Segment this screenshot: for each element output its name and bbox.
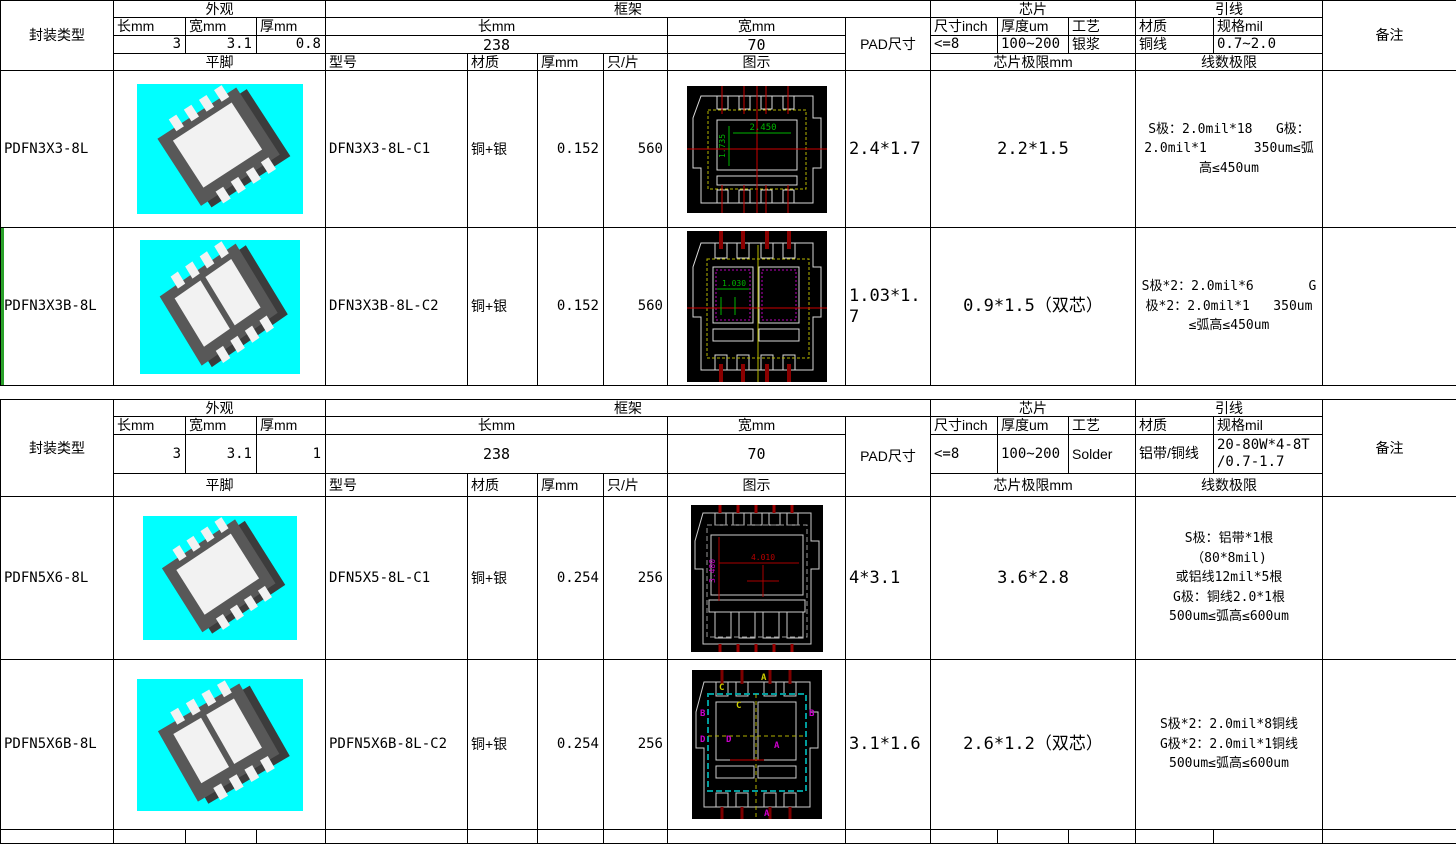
material-cell: 铜+银	[468, 660, 538, 830]
appearance-thickness-label: 厚mm	[257, 18, 326, 36]
spacer-cell	[998, 830, 1069, 844]
frame-header: 框架	[326, 400, 931, 417]
chip-process-value: Solder	[1069, 435, 1136, 474]
chip-limit-cell: 0.9*1.5（双芯）	[931, 228, 1136, 386]
wire-spec-label: 规格mil	[1214, 18, 1323, 36]
spacer-cell	[1323, 830, 1456, 844]
cad-label-c: C	[719, 683, 724, 693]
cad-label-d: D	[726, 735, 732, 745]
pad-size-cell: 1.03*1.7	[846, 228, 931, 386]
cad-footprint-diagram: 4.010 3.480	[691, 505, 823, 652]
chip-thickness-label: 厚度um	[998, 18, 1069, 36]
spacer-cell	[326, 830, 468, 844]
thickness-column-header: 厚mm	[538, 54, 604, 71]
chip-thickness-value: 100~200	[998, 435, 1069, 474]
remark-header: 备注	[1323, 400, 1456, 497]
chip-header: 芯片	[931, 1, 1136, 18]
material-column-header: 材质	[468, 474, 538, 497]
appearance-header: 外观	[114, 400, 326, 417]
appearance-header: 外观	[114, 1, 326, 18]
package-type-header: 封装类型	[1, 1, 114, 71]
chip-limit-header: 芯片极限mm	[931, 474, 1136, 497]
remark-cell	[1323, 71, 1456, 228]
cad-diagram-cell: C C A B B D D A A	[668, 660, 846, 830]
chip-3d-photo	[143, 516, 297, 640]
appearance-length-label: 长mm	[114, 417, 186, 435]
appearance-width-value: 3.1	[186, 36, 257, 54]
wire-limit-cell: S极*2：2.0mil*6 G 极*2：2.0mil*1 350um ≤弧高≤4…	[1136, 228, 1323, 386]
pad-size-header: PAD尺寸	[846, 417, 931, 497]
cad-footprint-diagram: 2.450 1.735	[687, 86, 827, 213]
appearance-width-value: 3.1	[186, 435, 257, 474]
thickness-column-header: 厚mm	[538, 474, 604, 497]
flat-foot-header: 平脚	[114, 474, 326, 497]
frame-length-label: 长mm	[326, 417, 668, 435]
cad-label-a: A	[764, 809, 770, 819]
material-cell: 铜+银	[468, 228, 538, 386]
material-cell: 铜+银	[468, 71, 538, 228]
flat-foot-header: 平脚	[114, 54, 326, 71]
thickness-cell: 0.152	[538, 71, 604, 228]
pcs-cell: 560	[604, 228, 668, 386]
thickness-cell: 0.152	[538, 228, 604, 386]
cad-label-d: D	[700, 735, 706, 745]
package-type-cell: PDFN3X3-8L	[1, 71, 114, 228]
cad-label-b: B	[700, 709, 706, 719]
spacer-cell	[1, 830, 114, 844]
appearance-thickness-value: 1	[257, 435, 326, 474]
wire-spec-value: 20-80W*4-8T /0.7-1.7	[1214, 435, 1323, 474]
chip-photo-cell	[114, 497, 326, 660]
appearance-width-label: 宽mm	[186, 18, 257, 36]
spacer-cell	[186, 830, 257, 844]
wire-material-value: 铜线	[1136, 36, 1214, 54]
cad-label-a: A	[761, 673, 767, 683]
model-cell: DFN3X3B-8L-C2	[326, 228, 468, 386]
material-cell: 铜+银	[468, 497, 538, 660]
wire-spec-value: 0.7~2.0	[1214, 36, 1323, 54]
cad-dim-horizontal: 4.010	[750, 553, 774, 562]
chip-limit-cell: 2.2*1.5	[931, 71, 1136, 228]
model-cell: DFN3X3-8L-C1	[326, 71, 468, 228]
pad-size-cell: 2.4*1.7	[846, 71, 931, 228]
spacer-cell	[538, 830, 604, 844]
cad-dim-horizontal: 2.450	[749, 123, 776, 133]
package-table-2: 封装类型 外观 框架 芯片 引线 备注 长mm 宽mm 厚mm 长mm 宽mm …	[0, 399, 1456, 844]
chip-size-value: <=8	[931, 36, 998, 54]
package-table-1: 封装类型 外观 框架 芯片 引线 备注 长mm 宽mm 厚mm 长mm 宽mm …	[0, 0, 1456, 386]
spacer-cell	[1214, 830, 1323, 844]
frame-length-value: 238	[326, 36, 668, 54]
chip-thickness-value: 100~200	[998, 36, 1069, 54]
frame-length-label: 长mm	[326, 18, 668, 36]
package-type-cell: PDFN3X3B-8L	[1, 228, 114, 386]
chip-limit-cell: 2.6*1.2（双芯）	[931, 660, 1136, 830]
pad-size-cell: 4*3.1	[846, 497, 931, 660]
model-cell: DFN5X5-8L-C1	[326, 497, 468, 660]
cad-diagram-cell: 2.450 1.735	[668, 71, 846, 228]
spacer-cell	[668, 830, 846, 844]
remark-cell	[1323, 497, 1456, 660]
wire-limit-cell: S极*2：2.0mil*8铜线 G极*2：2.0mil*1铜线 500um≤弧高…	[1136, 660, 1323, 830]
wire-limit-cell: S极：2.0mil*18 G极： 2.0mil*1 350um≤弧 高≤450u…	[1136, 71, 1323, 228]
cad-dim-vertical: 1.735	[718, 133, 727, 157]
pad-size-cell: 3.1*1.6	[846, 660, 931, 830]
chip-photo-cell	[114, 660, 326, 830]
chip-photo-cell	[114, 228, 326, 386]
chip-size-label: 尺寸inch	[931, 18, 998, 36]
cad-label-b: B	[809, 709, 815, 719]
chip-size-label: 尺寸inch	[931, 417, 998, 435]
pcs-column-header: 只/片	[604, 474, 668, 497]
wire-limit-header: 线数极限	[1136, 474, 1323, 497]
chip-size-value: <=8	[931, 435, 998, 474]
spacer-cell	[114, 830, 186, 844]
remark-cell	[1323, 660, 1456, 830]
cad-label-a: A	[774, 741, 780, 751]
cad-dim-horizontal: 1.030	[721, 279, 745, 288]
package-type-header: 封装类型	[1, 400, 114, 497]
section-divider	[0, 386, 1456, 399]
wire-header: 引线	[1136, 400, 1323, 417]
spacer-cell	[257, 830, 326, 844]
cad-footprint-diagram: C C A B B D D A A	[692, 670, 822, 819]
spacer-cell	[846, 830, 931, 844]
diagram-column-header: 图示	[668, 474, 846, 497]
cad-diagram-cell: 4.010 3.480	[668, 497, 846, 660]
cad-footprint-diagram: 1.030	[687, 231, 827, 382]
wire-material-value: 铝带/铜线	[1136, 435, 1214, 474]
remark-cell	[1323, 228, 1456, 386]
thickness-cell: 0.254	[538, 497, 604, 660]
model-column-header: 型号	[326, 54, 468, 71]
chip-process-value: 银浆	[1069, 36, 1136, 54]
material-column-header: 材质	[468, 54, 538, 71]
wire-material-label: 材质	[1136, 18, 1214, 36]
chip-3d-photo	[137, 84, 303, 214]
appearance-length-value: 3	[114, 435, 186, 474]
wire-limit-header: 线数极限	[1136, 54, 1323, 71]
wire-spec-label: 规格mil	[1214, 417, 1323, 435]
chip-limit-cell: 3.6*2.8	[931, 497, 1136, 660]
appearance-thickness-label: 厚mm	[257, 417, 326, 435]
pcs-cell: 256	[604, 497, 668, 660]
chip-process-label: 工艺	[1069, 18, 1136, 36]
spacer-cell	[931, 830, 998, 844]
chip-limit-header: 芯片极限mm	[931, 54, 1136, 71]
pcs-cell: 256	[604, 660, 668, 830]
frame-width-value: 70	[668, 36, 846, 54]
chip-photo-cell	[114, 71, 326, 228]
chip-header: 芯片	[931, 400, 1136, 417]
package-type-cell: PDFN5X6-8L	[1, 497, 114, 660]
chip-thickness-label: 厚度um	[998, 417, 1069, 435]
wire-material-text: 铜线	[1139, 36, 1167, 53]
frame-width-label: 宽mm	[668, 417, 846, 435]
wire-limit-cell: S极：铝带*1根 （80*8mil) 或铝线12mil*5根 G极：铜线2.0*…	[1136, 497, 1323, 660]
appearance-length-value: 3	[114, 36, 186, 54]
appearance-thickness-value: 0.8	[257, 36, 326, 54]
pcs-cell: 560	[604, 71, 668, 228]
spacer-cell	[468, 830, 538, 844]
thickness-cell: 0.254	[538, 660, 604, 830]
wire-header: 引线	[1136, 1, 1323, 18]
appearance-width-label: 宽mm	[186, 417, 257, 435]
pcs-column-header: 只/片	[604, 54, 668, 71]
spec-sheet: 封装类型 外观 框架 芯片 引线 备注 长mm 宽mm 厚mm 长mm 宽mm …	[0, 0, 1456, 844]
frame-length-value: 238	[326, 435, 668, 474]
diagram-column-header: 图示	[668, 54, 846, 71]
chip-3d-photo	[140, 240, 300, 374]
wire-material-label: 材质	[1136, 417, 1214, 435]
appearance-length-label: 长mm	[114, 18, 186, 36]
cad-dim-vertical: 3.480	[708, 558, 717, 582]
package-type-cell: PDFN5X6B-8L	[1, 660, 114, 830]
frame-width-label: 宽mm	[668, 18, 846, 36]
pad-size-header: PAD尺寸	[846, 18, 931, 71]
chip-process-label: 工艺	[1069, 417, 1136, 435]
spacer-cell	[604, 830, 668, 844]
cad-diagram-cell: 1.030	[668, 228, 846, 386]
chip-3d-photo	[137, 679, 303, 811]
frame-header: 框架	[326, 1, 931, 18]
remark-header: 备注	[1323, 1, 1456, 71]
spacer-cell	[1069, 830, 1136, 844]
cad-label-c: C	[736, 701, 741, 711]
frame-width-value: 70	[668, 435, 846, 474]
spacer-cell	[1136, 830, 1214, 844]
model-column-header: 型号	[326, 474, 468, 497]
wire-material-text: 铝带/铜线	[1139, 445, 1199, 463]
model-cell: PDFN5X6B-8L-C2	[326, 660, 468, 830]
